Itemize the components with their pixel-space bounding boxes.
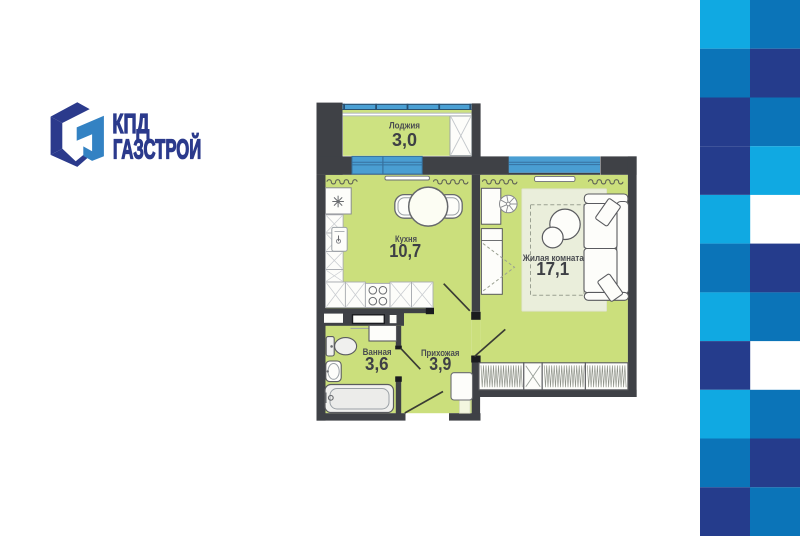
- svg-text:3,0: 3,0: [392, 130, 417, 150]
- svg-text:3,9: 3,9: [429, 354, 451, 374]
- svg-text:3,6: 3,6: [365, 354, 389, 374]
- svg-text:17,1: 17,1: [536, 259, 569, 279]
- svg-text:ГАЗСТРОЙ: ГАЗСТРОЙ: [113, 132, 201, 164]
- svg-text:10,7: 10,7: [389, 241, 421, 261]
